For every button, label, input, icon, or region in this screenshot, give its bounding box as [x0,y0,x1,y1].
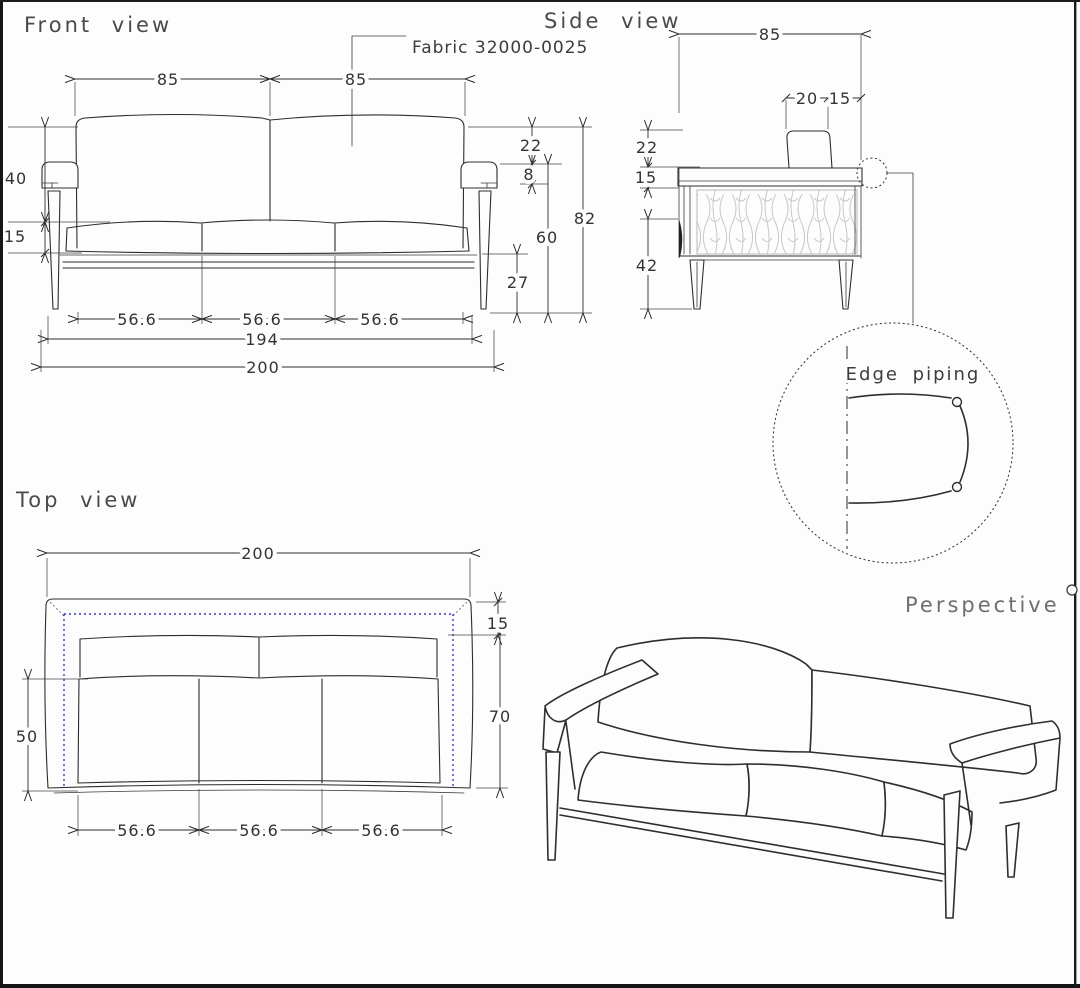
front-sofa-drawing [42,115,497,310]
front-view-title: Front view [24,13,172,37]
dim-top-seat-1: 56.6 [117,821,157,840]
dim-front-rail-to-floor: 27 [507,273,529,292]
dim-front-back-above-arm: 22 [520,136,542,155]
dim-front-seat-2: 56.6 [242,310,282,329]
front-view: Front view Fabric 32000-0025 [4,13,596,377]
dim-side-overall-depth: 85 [759,25,781,44]
dim-side-leg-height: 42 [636,256,658,275]
border-top [0,0,1080,2]
perspective-title: Perspective [905,593,1060,617]
top-view-title: Top view [15,488,140,512]
top-left-dimension: 50 [16,679,88,791]
dim-top-seat-3: 56.6 [361,821,401,840]
dim-front-seat-thickness: 15 [4,227,26,246]
dim-side-back-above-arm: 22 [636,138,658,157]
top-view: Top view 200 15 [15,488,511,840]
dim-front-overall-height: 82 [574,209,596,228]
dim-top-back-depth: 15 [487,614,509,633]
dim-front-seat-1: 56.6 [117,310,157,329]
dim-top-seat-depth: 50 [16,727,38,746]
side-view: Side view 85 [544,9,913,323]
side-bracket [679,219,682,257]
fabric-note-label: Fabric 32000-0025 [412,38,588,58]
dim-front-span-right: 85 [345,70,367,89]
border-left [0,0,3,988]
dim-front-overall-width: 200 [246,358,280,377]
dim-top-inner-depth: 70 [489,707,511,726]
dim-side-headrest-offset: 15 [829,89,851,108]
side-headrest-dimensions: 20 15 [782,89,865,129]
technical-drawing: Front view Fabric 32000-0025 [0,0,1080,988]
dim-front-back-height: 40 [5,169,27,188]
top-bottom-dimensions: 56.6 56.6 56.6 [78,789,442,840]
dim-top-overall-width: 200 [241,544,275,563]
wood-panel [697,190,857,254]
dim-front-frame-width: 194 [245,330,279,349]
side-view-title: Side view [544,9,681,33]
top-sofa-drawing [45,599,473,793]
border-right [1074,0,1076,988]
top-width-dimension: 200 [47,544,470,597]
edge-piping-label: Edge piping [846,364,981,385]
side-sofa-drawing [678,131,913,323]
fabric-note: Fabric 32000-0025 [352,36,588,146]
border-mark [1067,585,1077,595]
dim-side-headrest-width: 20 [796,89,818,108]
piping-profile [849,394,968,503]
front-top-dimensions: 85 85 [75,70,465,116]
dim-side-arm-thickness: 15 [635,168,657,187]
top-right-dimensions: 15 70 [448,598,511,788]
front-bottom-dimensions: 56.6 56.6 56.6 194 200 [41,256,494,377]
dim-top-seat-2: 56.6 [239,821,279,840]
dim-front-piping-offset: 8 [523,165,534,184]
edge-piping-detail: Edge piping [773,323,1013,563]
dim-front-span-left: 85 [157,70,179,89]
perspective-view: Perspective [543,593,1060,918]
border-bottom [0,984,1080,988]
dim-front-seat-3: 56.6 [360,310,400,329]
blueprint-page: Front view Fabric 32000-0025 [0,0,1080,988]
dim-front-arm-to-floor: 60 [536,228,558,247]
perspective-sofa-sketch [543,638,1060,918]
detail-circle [773,323,1013,563]
